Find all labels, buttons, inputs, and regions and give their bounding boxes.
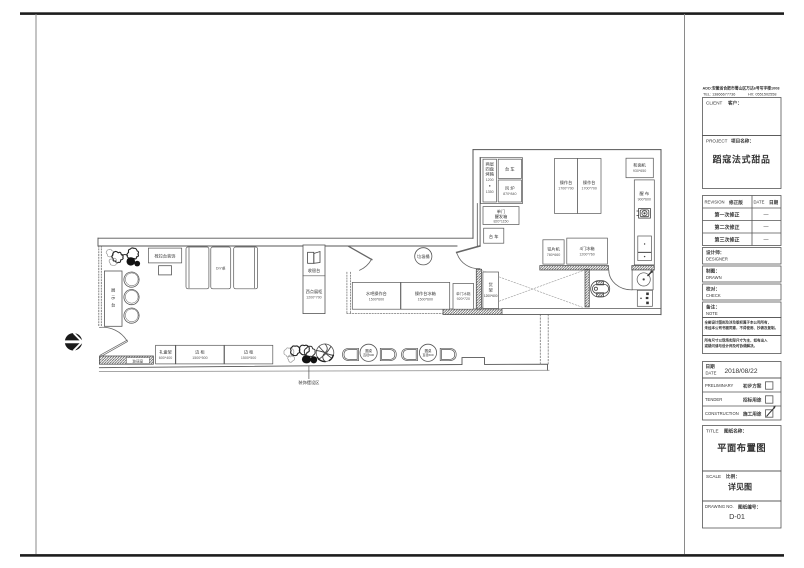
svg-text:CONSTRUCTION: CONSTRUCTION [705, 411, 739, 416]
svg-text:CLIENT: CLIENT [706, 101, 723, 106]
svg-text:TITLE: TITLE [706, 429, 719, 434]
svg-text:DIY桌: DIY桌 [216, 266, 226, 271]
svg-text:—: — [764, 211, 769, 217]
svg-text:1200*760: 1200*760 [579, 253, 594, 257]
svg-text:边 柜: 边 柜 [195, 349, 205, 356]
svg-text:直径600: 直径600 [363, 352, 374, 357]
svg-text:台 车: 台 车 [489, 233, 499, 240]
svg-text:蹈寇法式甜品: 蹈寇法式甜品 [713, 154, 771, 165]
svg-text:1500*600: 1500*600 [369, 298, 384, 302]
svg-text:第一次修正: 第一次修正 [714, 211, 739, 218]
svg-text:初步方案: 初步方案 [743, 382, 762, 389]
svg-text:或疑问请与设计师及时协调解决。: 或疑问请与设计师及时协调解决。 [705, 343, 758, 348]
svg-text:铝片机: 铝片机 [547, 246, 560, 253]
svg-text:HX: 0551502558: HX: 0551502558 [748, 93, 777, 97]
svg-text:操作台: 操作台 [583, 179, 596, 186]
svg-text:单门冰箱: 单门冰箱 [456, 291, 471, 296]
svg-text:●: ● [489, 184, 491, 188]
svg-text:西点展柜: 西点展柜 [306, 288, 323, 295]
svg-text:ADD:安徽省合肥市蜀山区万达6号写字楼1008: ADD:安徽省合肥市蜀山区万达6号写字楼1008 [703, 86, 780, 91]
svg-text:日期: 日期 [769, 199, 779, 206]
svg-text:TEL: 13866677736: TEL: 13866677736 [703, 93, 735, 97]
svg-text:修正版: 修正版 [728, 199, 743, 206]
svg-text:TENDER: TENDER [705, 397, 722, 402]
svg-text:设计师：: 设计师： [706, 249, 724, 256]
svg-text:1700*700: 1700*700 [582, 187, 597, 191]
svg-text:装饰摆设区: 装饰摆设区 [298, 379, 319, 386]
svg-text:收银台: 收银台 [308, 267, 321, 274]
svg-text:所有尺寸以现场实际尺寸为主，如有出入: 所有尺寸以现场实际尺寸为主，如有出入 [704, 338, 768, 343]
svg-text:水吧操作台: 水吧操作台 [366, 290, 387, 297]
svg-text:直径600: 直径600 [422, 352, 433, 357]
svg-text:示: 示 [111, 295, 115, 300]
svg-text:780*660: 780*660 [547, 253, 560, 257]
svg-text:900*600: 900*600 [638, 198, 651, 202]
svg-text:玻璃窗: 玻璃窗 [132, 358, 143, 363]
svg-text:第三次修正: 第三次修正 [714, 236, 739, 243]
svg-text:SCALE: SCALE [706, 474, 721, 479]
svg-text:D-01: D-01 [729, 512, 745, 521]
svg-text:醒 布: 醒 布 [640, 190, 650, 197]
svg-text:和面机: 和面机 [633, 162, 646, 169]
svg-text:风 炉: 风 炉 [505, 185, 515, 192]
svg-text:REVISION: REVISION [705, 200, 725, 205]
svg-text:1200*600: 1200*600 [484, 294, 498, 298]
svg-text:870*840: 870*840 [503, 192, 516, 196]
svg-text:1700*700: 1700*700 [558, 187, 573, 191]
svg-text:DESIGNER: DESIGNER [706, 257, 728, 262]
svg-text:施工用途: 施工用途 [742, 410, 762, 417]
svg-text:烤箱: 烤箱 [486, 171, 494, 178]
svg-text:台 车: 台 车 [505, 166, 515, 173]
svg-text:1200*700: 1200*700 [306, 296, 321, 300]
svg-text:日期: 日期 [706, 363, 716, 370]
svg-text:操作台: 操作台 [560, 179, 573, 186]
svg-text:操作台冰箱: 操作台冰箱 [415, 290, 436, 297]
svg-text:DRAWING NO.: DRAWING NO. [705, 504, 734, 509]
svg-text:1500*500: 1500*500 [241, 356, 256, 360]
svg-text:820*1150: 820*1150 [493, 220, 508, 224]
svg-text:PROJECT: PROJECT [706, 139, 728, 144]
svg-text:校对：: 校对： [706, 286, 720, 293]
svg-text:PRELIMINARY: PRELIMINARY [705, 383, 734, 388]
svg-text:1500*600: 1500*600 [418, 298, 433, 302]
svg-text:—: — [764, 236, 769, 242]
svg-text:招标用途: 招标用途 [743, 396, 762, 403]
svg-text:4门冰箱: 4门冰箱 [580, 245, 595, 252]
svg-text:备注：: 备注： [705, 304, 720, 311]
svg-text:1200: 1200 [486, 178, 494, 182]
svg-text:台: 台 [111, 302, 115, 309]
svg-text:梳拉台装饰: 梳拉台装饰 [155, 253, 176, 260]
svg-text:平面布置图: 平面布置图 [717, 442, 766, 453]
svg-text:未经本公司书面同意，不得使用、抄袭及复制。: 未经本公司书面同意，不得使用、抄袭及复制。 [704, 325, 779, 330]
svg-text:详见图: 详见图 [728, 482, 752, 492]
svg-text:制图：: 制图： [706, 268, 720, 275]
svg-text:930*650: 930*650 [633, 169, 646, 173]
svg-text:边 柜: 边 柜 [244, 349, 254, 356]
svg-text:比例：: 比例： [726, 473, 740, 480]
svg-text:项目名称：: 项目名称： [731, 138, 754, 145]
svg-text:CHECK: CHECK [706, 293, 721, 298]
svg-text:920*720: 920*720 [457, 297, 470, 301]
svg-text:600*400: 600*400 [159, 356, 172, 360]
svg-text:1350: 1350 [486, 190, 494, 194]
svg-text:—: — [764, 224, 769, 230]
svg-text:客户：: 客户： [727, 100, 742, 107]
svg-text:第二次修正: 第二次修正 [714, 224, 739, 231]
svg-text:DATE: DATE [754, 200, 765, 205]
svg-text:图纸名称：: 图纸名称： [724, 428, 747, 435]
svg-text:1500*500: 1500*500 [192, 356, 207, 360]
svg-text:NOTE: NOTE [706, 311, 718, 316]
svg-text:垃圾桶: 垃圾桶 [417, 253, 430, 260]
svg-text:DATE: DATE [706, 371, 717, 376]
svg-text:图纸编号：: 图纸编号： [738, 503, 761, 510]
svg-text:2018/08/22: 2018/08/22 [724, 368, 757, 375]
svg-text:全部设计图则及涉及版权属于本公司所有，: 全部设计图则及涉及版权属于本公司所有， [704, 320, 772, 325]
svg-text:DRAWN: DRAWN [706, 275, 722, 280]
svg-text:礼盒架: 礼盒架 [159, 349, 172, 356]
